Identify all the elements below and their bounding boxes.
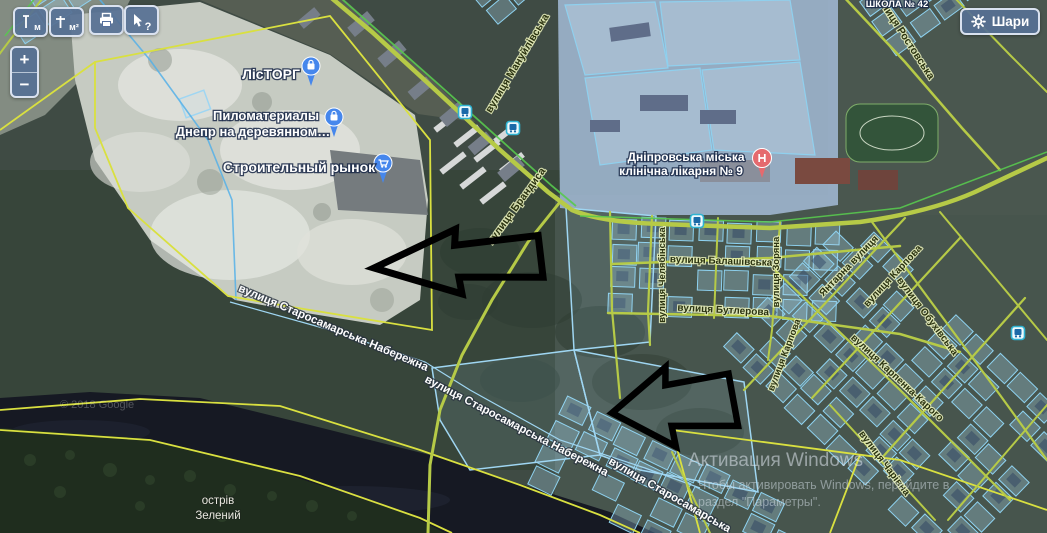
measure-area-unit: м² [69,22,79,32]
zoom-out-button[interactable]: − [12,73,37,97]
stadium [846,104,938,162]
poi-label-market: Строительный рынок [223,159,376,175]
zoom-in-button[interactable]: + [12,48,37,73]
island-label-1: острів [202,495,234,507]
satellite-map: вулиця Мануйлівська вулиця Ростовська ву… [0,0,1047,533]
map-canvas[interactable]: вулиця Мануйлівська вулиця Ростовська ву… [0,0,1047,533]
street-label-cheliabinska: вулиця Челябінська [657,226,668,322]
help-cursor-button[interactable]: ? [124,5,159,35]
island-label-2: Зелений [195,510,240,522]
bus-stop-icon[interactable] [507,122,520,135]
poi-label-school: ШКОЛА № 42 [866,0,928,10]
bus-stop-icon[interactable] [1012,327,1025,340]
cursor-icon [132,13,143,28]
area-measure-icon [54,14,67,30]
bus-stop-icon[interactable] [459,106,472,119]
measure-length-unit: м [34,22,41,32]
help-question-mark: ? [145,21,152,33]
bus-stop-icon[interactable] [691,215,704,228]
zoom-control: + − [10,46,39,98]
print-button[interactable] [89,5,124,35]
poi-label-hospital-1: Дніпровська міська [627,150,744,164]
measure-length-button[interactable]: м [13,7,48,37]
poi-label-lumber-2: Днепр на деревянном… [176,124,331,139]
street-label-zoriana: вулиця Зоряна [771,236,782,307]
printer-icon [98,12,115,28]
ruler-icon [20,14,32,30]
poi-label-hospital-2: клінічна лікарня № 9 [619,164,743,178]
measure-area-button[interactable]: м² [49,7,84,37]
gear-icon [971,14,986,29]
poi-label-lumber-1: Пиломатериалы [213,108,319,123]
layers-button[interactable]: Шари [960,8,1040,35]
poi-label-listorg: ЛісТОРГ [242,66,300,82]
layers-button-label: Шари [992,14,1030,29]
map-app-window: вулиця Мануйлівська вулиця Ростовська ву… [0,0,1047,533]
